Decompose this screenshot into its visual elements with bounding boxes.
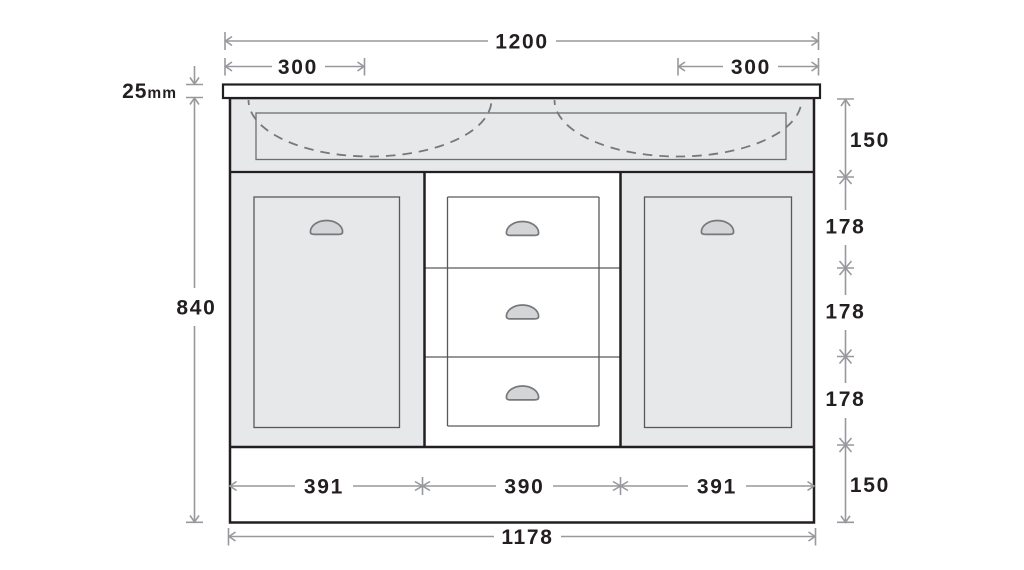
svg-text:840: 840 (176, 297, 216, 320)
svg-text:300: 300 (731, 56, 771, 79)
svg-text:391: 391 (697, 476, 737, 499)
svg-text:300: 300 (278, 56, 318, 79)
svg-text:1200: 1200 (495, 31, 549, 54)
svg-text:178: 178 (825, 388, 865, 411)
svg-text:1178: 1178 (501, 526, 553, 549)
svg-text:178: 178 (825, 301, 865, 324)
svg-text:390: 390 (504, 476, 544, 499)
svg-text:150: 150 (850, 129, 890, 152)
svg-text:150: 150 (850, 474, 890, 497)
svg-text:178: 178 (825, 216, 865, 239)
svg-text:391: 391 (304, 476, 344, 499)
